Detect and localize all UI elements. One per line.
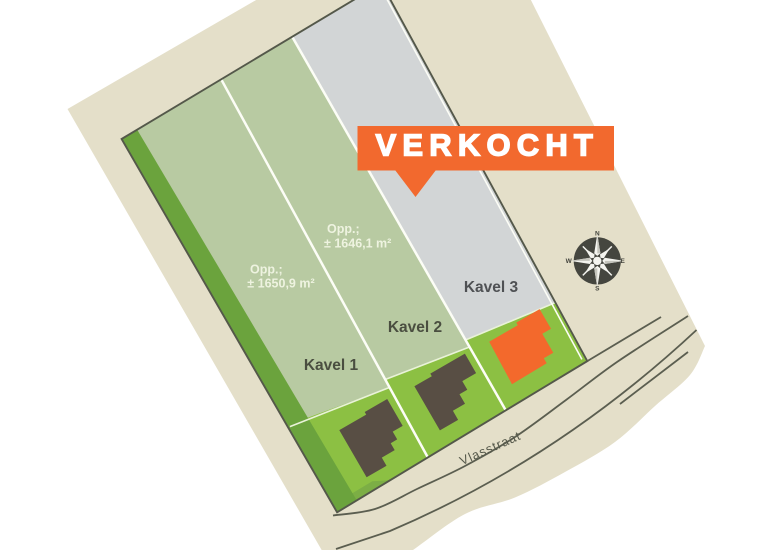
svg-text:Kavel 2: Kavel 2 <box>388 319 442 336</box>
svg-text:VERKOCHT: VERKOCHT <box>376 127 600 162</box>
svg-text:Opp.;: Opp.; <box>327 222 360 236</box>
svg-text:S: S <box>595 286 600 293</box>
svg-text:Kavel 1: Kavel 1 <box>304 357 359 374</box>
svg-text:Kavel 3: Kavel 3 <box>464 279 519 296</box>
svg-text:N: N <box>595 230 600 237</box>
svg-text:Opp.;: Opp.; <box>250 263 283 277</box>
svg-text:± 1646,1 m²: ± 1646,1 m² <box>324 237 391 251</box>
svg-text:± 1650,9 m²: ± 1650,9 m² <box>247 277 314 291</box>
svg-text:E: E <box>621 258 626 265</box>
svg-text:W: W <box>566 258 573 265</box>
